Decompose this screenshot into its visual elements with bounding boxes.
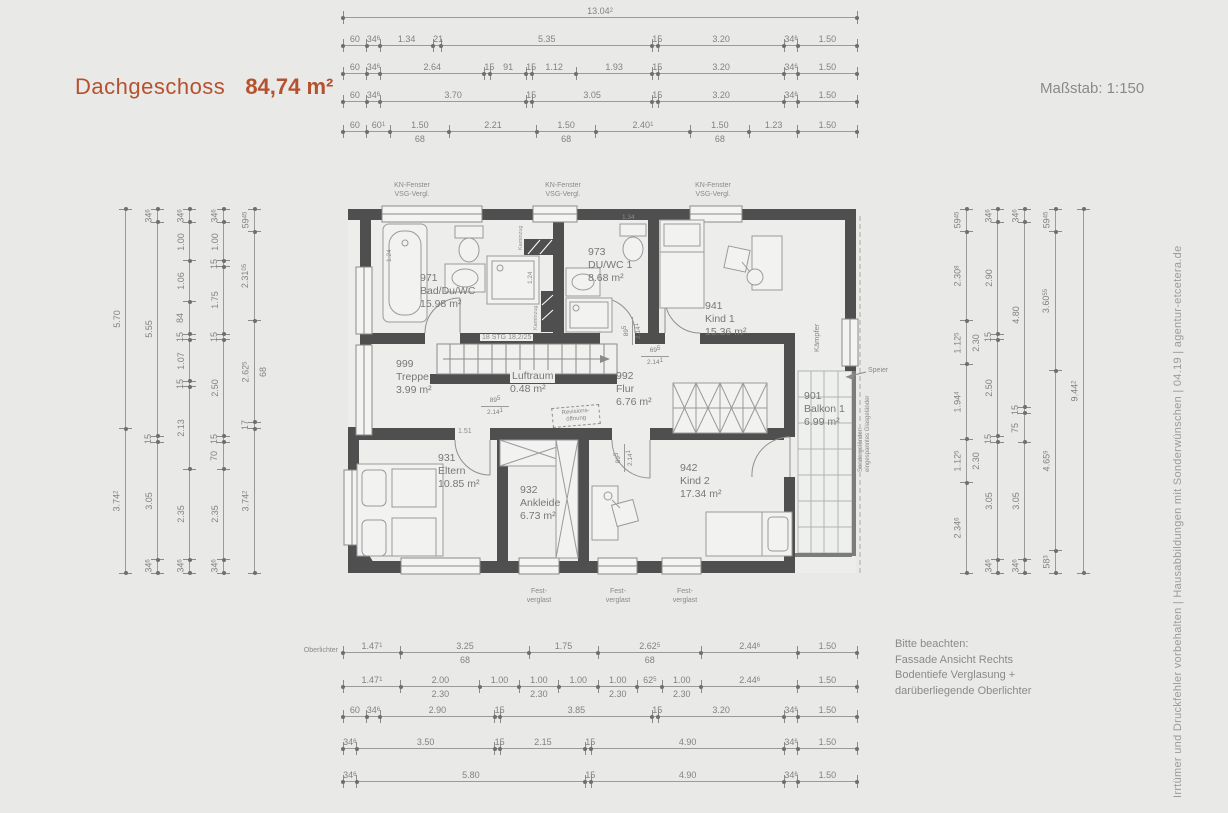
- wc-1: [455, 226, 483, 238]
- room-bad: 971Bad/Du/WC15.98 m²: [420, 272, 475, 311]
- door-dim-kind2: 8952.141: [614, 444, 634, 472]
- window-note-2: KN-FensterVSG-Vergl.: [528, 182, 598, 199]
- dim-1-51: 1.51: [458, 428, 472, 435]
- shaft-label-1: Kaminzug: [518, 226, 524, 250]
- notice-block: Bitte beachten: Fassade Ansicht Rechts B…: [895, 637, 1031, 699]
- glass-railing-right: [852, 371, 856, 556]
- room-kind1: 941Kind 115.36 m²: [705, 300, 746, 339]
- room-duwc1: 973DU/WC 18.68 m²: [588, 246, 632, 285]
- shaft-label-2: Kaminzug: [533, 306, 539, 330]
- kaempfer-label: Kämpfer: [812, 324, 821, 352]
- room-balkon: 901Balkon 16.99 m²: [804, 390, 845, 429]
- railing-label: Sondergeländer:eingespanntes Glasgelände…: [858, 396, 872, 472]
- dim-1-34: 1.34: [622, 214, 635, 221]
- glass-railing-bottom: [795, 553, 852, 557]
- fest-verglast-3: Fest-verglast: [665, 588, 705, 605]
- door-dim-flur: 8952.141: [622, 317, 642, 345]
- room-treppe: 999Treppe3.99 m²: [396, 358, 432, 397]
- window-note-3: KN-FensterVSG-Vergl.: [678, 182, 748, 199]
- dim-1-24-a: 1.24: [386, 249, 393, 262]
- window-note-1: KN-FensterVSG-Vergl.: [377, 182, 447, 199]
- door-dim-eltern: 8952.141: [481, 396, 509, 416]
- floor-plan-page: Dachgeschoss 84,74 m² Maßstab: 1:150: [0, 0, 1228, 813]
- stair-count-label: 18 STG 18,2/25: [480, 334, 533, 341]
- wc-2: [620, 224, 646, 236]
- room-flur: 992Flur6.76 m²: [616, 370, 652, 409]
- speier-label: Speier: [868, 367, 888, 374]
- disclaimer-vertical: Irrtümer und Druckfehler vorbehalten | H…: [1172, 246, 1184, 799]
- door-dim-kind1: 6952.141: [641, 346, 669, 366]
- chair-kind1: [724, 246, 750, 272]
- room-ankleide: 932Ankleide6.73 m²: [520, 484, 560, 523]
- room-kind2: 942Kind 217.34 m²: [680, 462, 721, 501]
- oberlichter-label: Oberlichter: [294, 647, 338, 656]
- room-luftraum: Luftraum0.48 m²: [510, 370, 555, 396]
- fest-verglast-2: Fest-verglast: [598, 588, 638, 605]
- revision-opening-label: Revisions-öffnung: [551, 404, 601, 428]
- room-eltern: 931Eltern10.85 m²: [438, 452, 479, 491]
- dim-1-24-b: 1.24: [527, 271, 534, 284]
- fest-verglast-1: Fest-verglast: [519, 588, 559, 605]
